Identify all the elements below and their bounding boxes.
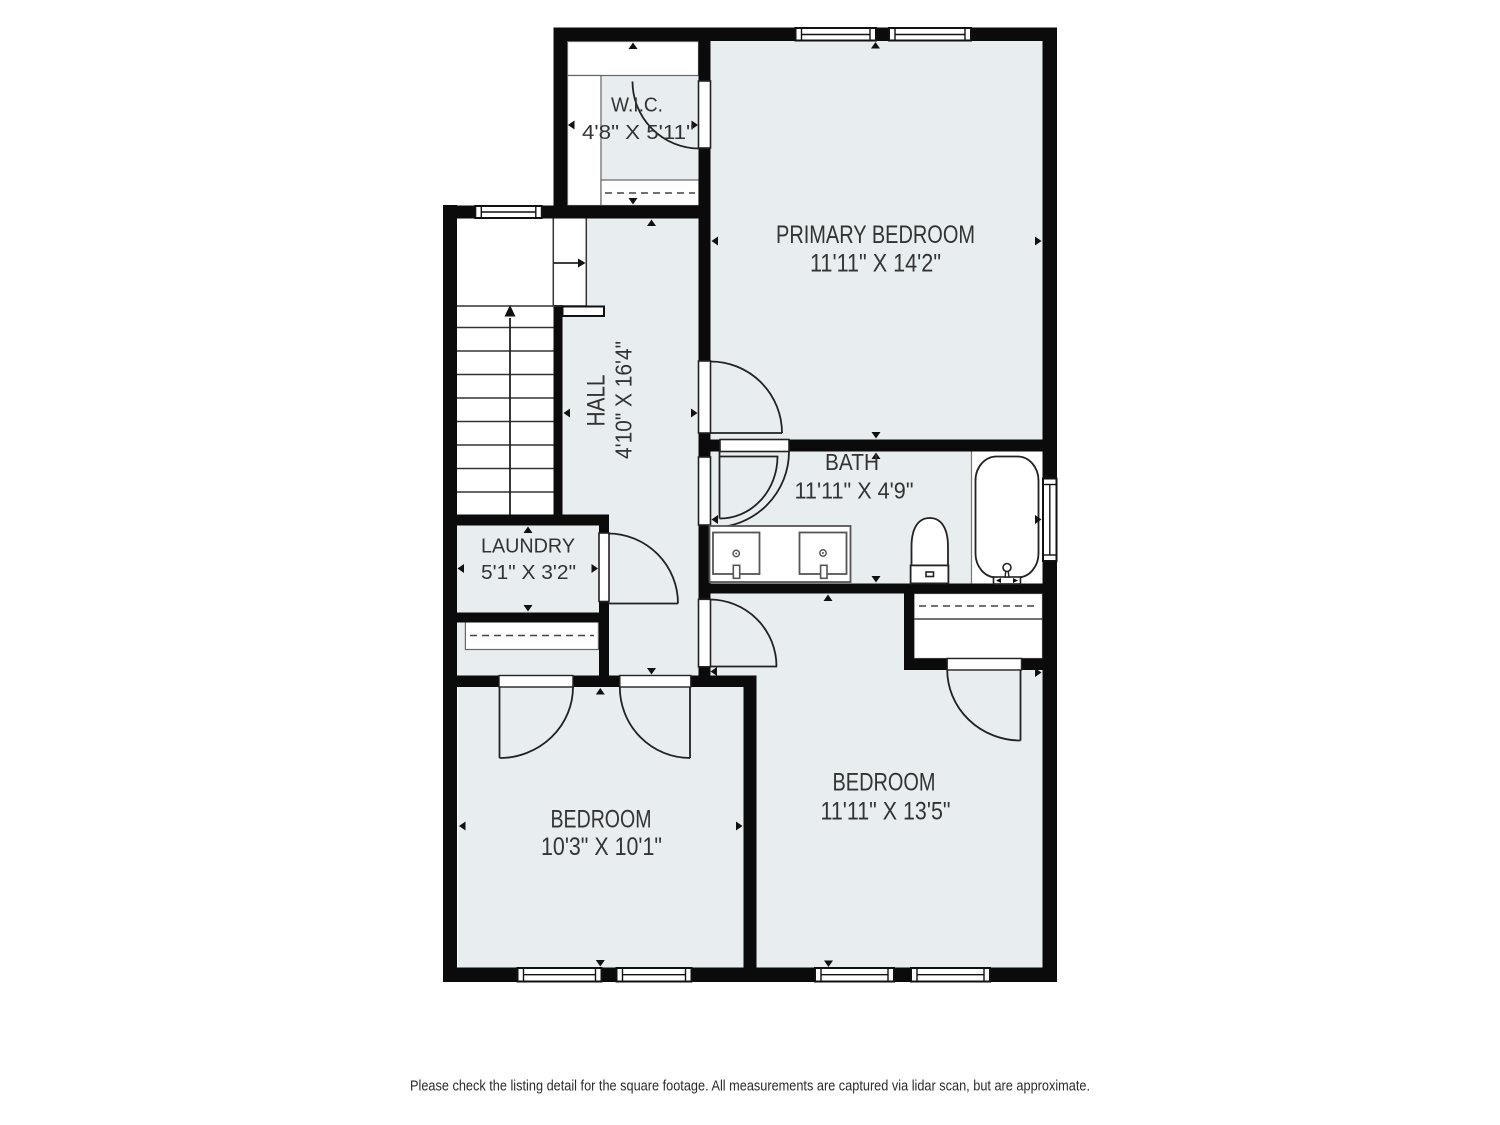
svg-text:11'11" X 14'2": 11'11" X 14'2" — [810, 250, 941, 278]
svg-text:W.I.C.: W.I.C. — [611, 95, 663, 117]
svg-text:11'11" X 4'9": 11'11" X 4'9" — [795, 478, 914, 504]
svg-text:10'3" X 10'1": 10'3" X 10'1" — [541, 833, 662, 861]
svg-text:BEDROOM: BEDROOM — [833, 769, 936, 797]
svg-text:4'8" X 5'11": 4'8" X 5'11" — [582, 122, 694, 144]
svg-text:HALL: HALL — [583, 374, 611, 426]
svg-text:LAUNDRY: LAUNDRY — [481, 536, 575, 558]
svg-text:BEDROOM: BEDROOM — [551, 806, 652, 834]
svg-text:5'1" X 3'2": 5'1" X 3'2" — [481, 562, 576, 584]
svg-text:PRIMARY BEDROOM: PRIMARY BEDROOM — [776, 221, 975, 249]
svg-text:4'10" X 16'4": 4'10" X 16'4" — [611, 341, 637, 459]
svg-text:11'11" X 13'5": 11'11" X 13'5" — [821, 798, 951, 826]
svg-text:BATH: BATH — [825, 449, 879, 475]
svg-text:Please check the listing detai: Please check the listing detail for the … — [410, 1078, 1090, 1095]
